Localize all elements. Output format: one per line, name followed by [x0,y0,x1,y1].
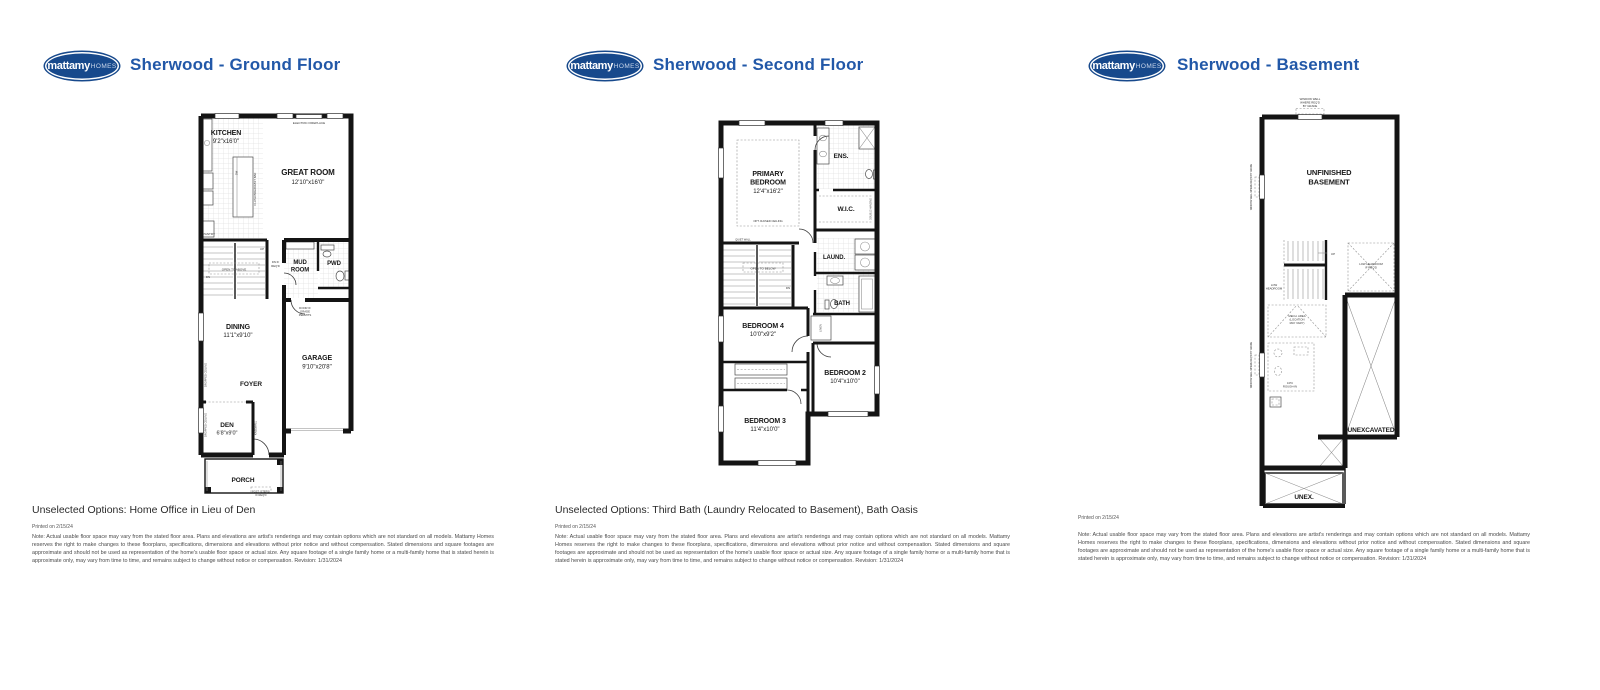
post-steps-line2: IF REQ'D [255,493,266,497]
stairs-dn-label: DN [786,286,790,290]
second-floor-plan: PRIMARY BEDROOM 12'4"x16'2" OPT. RAISED … [713,118,881,470]
great-room-dims: 12'10"x16'0" [292,180,325,186]
primary-bedroom-dims: 12'4"x16'2" [753,189,783,195]
breakfast-bar-label: FLUSH BREAKFAST BAR [253,173,257,206]
pantry-label: PANTRY [203,232,215,236]
ground-floor-porch-structure [205,459,283,493]
dropped-ceiling-label-1: DROPPED CEILING [204,363,208,387]
walk-in-closet-label: W.I.C. [837,206,854,213]
low-headroom-line2: HEADROOM [1266,287,1283,291]
second-floor-stair-treads [723,245,791,306]
laundry-label: LAUND. [823,255,845,261]
quiet-wall-label: QUIET WALL [735,238,751,242]
mech-area-line3: MAY VARY) [1290,321,1305,325]
floorplan-sheet: mattamyHOMES Sherwood - Ground Floor [0,0,1600,690]
logo-text-homes: HOMES [91,63,117,70]
ground-printed-date: Printed on 2/15/24 [32,524,73,530]
mattamy-homes-logo: mattamyHOMES [1090,52,1164,80]
basement-plan: WINDOW WELL WHERE REQ'D BY GRADE WINDOW … [1232,95,1404,510]
dishwasher-label: DW [235,170,239,175]
ensuite-label: ENS. [834,153,849,160]
electric-fireplace-label: ELECTRIC FIREPLACE [293,121,325,125]
logo-text-mattamy: mattamy [1092,60,1134,72]
second-printed-date: Printed on 2/15/24 [555,524,596,530]
rough-in-line2: ROUGH-IN [1283,385,1297,389]
mud-room-label-line2: ROOM [291,268,309,274]
mattamy-homes-logo: mattamyHOMES [45,52,119,80]
primary-bedroom-label-line2: BEDROOM [750,180,786,187]
kitchen-label: KITCHEN [211,130,241,137]
kneewall-label: KNEEWALL [254,420,258,435]
dropped-ceiling-label-2: DROPPED CEILING [204,413,208,437]
bedroom2-label: BEDROOM 2 [824,370,866,377]
opt-raised-ceiling-label: OPT. RAISED CEILING [753,219,782,223]
window-well-left-lower-label: WINDOW WELL WHERE REQ'D BY GRADE [1250,341,1253,388]
low-headroom-if-reqd-line2: IF REQ'D [1365,266,1377,270]
unfinished-basement-label-line1: UNFINISHED [1307,168,1353,177]
dining-label: DINING [226,324,251,331]
bedroom3-label: BEDROOM 3 [744,418,786,425]
dn-if-reqd-line2: REQ'D [271,264,280,268]
page-title-second-floor: Sherwood - Second Floor [653,55,864,75]
second-disclaimer-note: Note: Actual usable floor space may vary… [555,533,1010,565]
powder-room-label: PWD [327,261,341,267]
bath-label: BATH [834,301,850,307]
open-to-above-label: OPEN TO ABOVE [222,268,246,272]
ground-floor-plan: KITCHEN 9'2"x16'0" GREAT ROOM 12'10"x16'… [193,113,358,498]
bedroom2-dims: 10'4"x10'0" [830,379,860,385]
stairs-dn-label: DN [206,275,210,279]
garage-label: GARAGE [302,355,333,362]
bedroom4-label: BEDROOM 4 [742,323,784,330]
mattamy-homes-logo: mattamyHOMES [568,52,642,80]
double-hanging-label: DOUBLE HANGING [870,198,873,220]
den-dims: 6'8"x9'0" [217,431,238,437]
stairs-up-label: UP [1331,252,1335,256]
logo-text-mattamy: mattamy [47,60,89,72]
page-title-basement: Sherwood - Basement [1177,55,1359,75]
unfinished-basement-label-line2: BASEMENT [1308,178,1350,187]
stairs-up-label: UP [260,247,264,251]
porch-label: PORCH [232,477,255,484]
window-well-top-line3: BY GRADE [1303,104,1318,108]
great-room-label: GREAT ROOM [281,168,335,177]
basement-printed-date: Printed on 2/15/24 [1078,515,1119,521]
basement-windows [1260,115,1323,378]
den-label: DEN [220,422,234,429]
page-title-ground-floor: Sherwood - Ground Floor [130,55,340,75]
door-if-grade-line3: PERMITS [299,313,312,317]
logo-text-homes: HOMES [614,63,640,70]
logo-text-homes: HOMES [1136,63,1162,70]
open-to-below-label: OPEN TO BELOW [750,267,775,271]
basement-stair-treads [1284,240,1327,300]
kitchen-dims: 9'2"x16'0" [213,139,239,145]
logo-text-mattamy: mattamy [570,60,612,72]
second-unselected-options: Unselected Options: Third Bath (Laundry … [555,504,918,516]
primary-bedroom-label-line1: PRIMARY [752,171,784,178]
unex-label: UNEX. [1294,494,1314,501]
linen-label: LINEN [819,324,823,332]
ground-unselected-options: Unselected Options: Home Office in Lieu … [32,504,255,516]
bedroom3-dims: 11'4"x10'0" [750,427,779,433]
foyer-label: FOYER [240,381,262,388]
mud-room-label-line1: MUD [293,260,307,266]
ground-disclaimer-note: Note: Actual usable floor space may vary… [32,533,494,565]
unexcavated-label: UNEXCAVATED [1348,427,1395,434]
basement-disclaimer-note: Note: Actual usable floor space may vary… [1078,531,1530,563]
dining-dims: 11'1"x9'10" [223,333,252,339]
window-well-left-upper-label: WINDOW WELL WHERE REQ'D BY GRADE [1250,163,1253,210]
bedroom4-dims: 10'0"x9'2" [750,332,776,338]
garage-dims: 9'10"x20'8" [302,365,332,371]
